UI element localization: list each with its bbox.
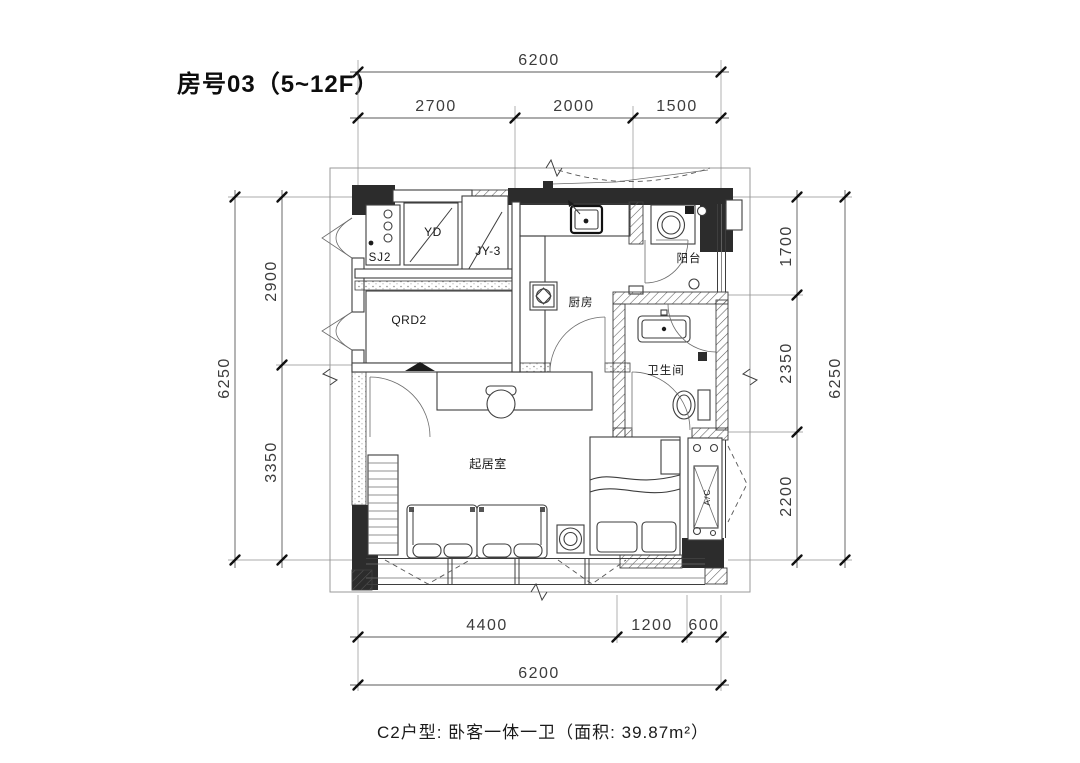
wardrobe — [368, 455, 398, 555]
kitchen-door-swing — [550, 317, 605, 372]
kitchen-label: 厨房 — [569, 296, 594, 309]
bathroom-label: 卫生间 — [647, 363, 685, 377]
wall-top-closet — [393, 190, 472, 202]
closet-bottom-wall — [355, 269, 512, 278]
kitchen-west-wall — [512, 202, 520, 372]
side-stool — [557, 525, 584, 553]
bathroom-sink — [638, 310, 690, 342]
wall-block-bottom-right — [682, 538, 724, 568]
plan-title: 房号03（5~12F） — [177, 70, 379, 98]
dim-top-seg-3: 1500 — [656, 98, 698, 115]
wall-top-main — [508, 188, 710, 205]
sofa-cushion — [483, 544, 511, 557]
top-dimensions: 6200 2700 2000 1500 — [350, 52, 729, 190]
dim-top-seg-2: 2000 — [553, 98, 595, 115]
bed — [590, 437, 680, 555]
casement-window-lower — [322, 312, 352, 350]
dim-left-seg-1: 2900 — [263, 260, 280, 302]
sofa-cushion — [514, 544, 542, 557]
wall-left-lower — [352, 372, 366, 505]
ac-unit: A/C — [688, 438, 722, 540]
floor-drain-icon — [689, 279, 699, 289]
sofa-cushion — [413, 544, 441, 557]
bottom-dimensions: 4400 1200 600 6200 — [350, 595, 729, 691]
yd-label: YD — [424, 225, 442, 239]
balcony-divider-wall — [629, 202, 643, 294]
balcony-label: 阳台 — [677, 251, 702, 265]
dim-left-total: 6250 — [216, 357, 233, 399]
dim-bottom-seg-3: 600 — [688, 617, 719, 634]
sofa-left — [407, 505, 477, 558]
sofa-cushion — [444, 544, 472, 557]
dim-left-seg-2: 3350 — [263, 441, 280, 483]
kitchen: 厨房 — [512, 200, 630, 372]
sofa-right — [477, 505, 547, 558]
drain-pipe — [698, 207, 707, 216]
pillow — [642, 522, 676, 552]
desk — [437, 372, 592, 418]
dim-bottom-seg-2: 1200 — [631, 617, 673, 634]
wall-strip-under-bed — [620, 555, 682, 568]
living-room: A/C 起居室 — [368, 372, 722, 558]
qrd2-label: QRD2 — [391, 313, 426, 327]
living-room-label: 起居室 — [469, 456, 507, 471]
right-dimensions: 1700 2350 2200 6250 — [728, 190, 852, 568]
floorplan-drawing: 房号03（5~12F） 6200 2700 2000 1500 — [0, 0, 1080, 763]
entry-door-swing — [543, 168, 710, 188]
jy3-label: JY-3 — [475, 244, 501, 258]
cabinet-jy3 — [462, 196, 508, 276]
wall-corner-sw — [352, 570, 372, 590]
sj2-label: SJ2 — [369, 252, 392, 264]
washing-machine — [651, 205, 695, 244]
floorplan-page: 房号03（5~12F） 6200 2700 2000 1500 — [0, 0, 1080, 763]
desk-chair — [487, 390, 515, 418]
dim-bottom-total: 6200 — [518, 665, 560, 682]
plan-caption: C2户型: 卧客一体一卫（面积: 39.87m²） — [377, 723, 709, 742]
pipe-shaft — [726, 200, 742, 230]
bathroom-north-wall — [613, 292, 728, 304]
entry-closets: SJ2 YD JY-3 — [355, 196, 512, 290]
dim-top-seg-1: 2700 — [415, 98, 457, 115]
dim-top-total: 6200 — [518, 52, 560, 69]
kitchen-south-wall-stub-1 — [520, 363, 550, 372]
dim-right-seg-1: 1700 — [778, 225, 795, 267]
stove — [530, 282, 557, 310]
ac-label: A/C — [702, 488, 712, 505]
wall-right-bathroom — [716, 300, 728, 430]
bathroom-west-wall — [613, 304, 625, 440]
dim-right-seg-2: 2350 — [778, 342, 795, 384]
casement-window-upper — [322, 218, 352, 258]
insulation-strip — [355, 281, 512, 290]
left-dimensions: 2900 3350 6250 — [216, 190, 352, 568]
dim-right-seg-3: 2200 — [778, 475, 795, 517]
pillow — [597, 522, 637, 552]
closet-qrd2: QRD2 — [352, 291, 520, 372]
toilet — [673, 390, 710, 420]
balcony: 阳台 — [645, 205, 707, 289]
east-casement-dashes — [728, 446, 747, 522]
dim-right-total: 6250 — [827, 357, 844, 399]
wall-corner-se — [705, 568, 727, 584]
interior-door-swing — [370, 377, 430, 437]
dim-bottom-seg-1: 4400 — [466, 617, 508, 634]
